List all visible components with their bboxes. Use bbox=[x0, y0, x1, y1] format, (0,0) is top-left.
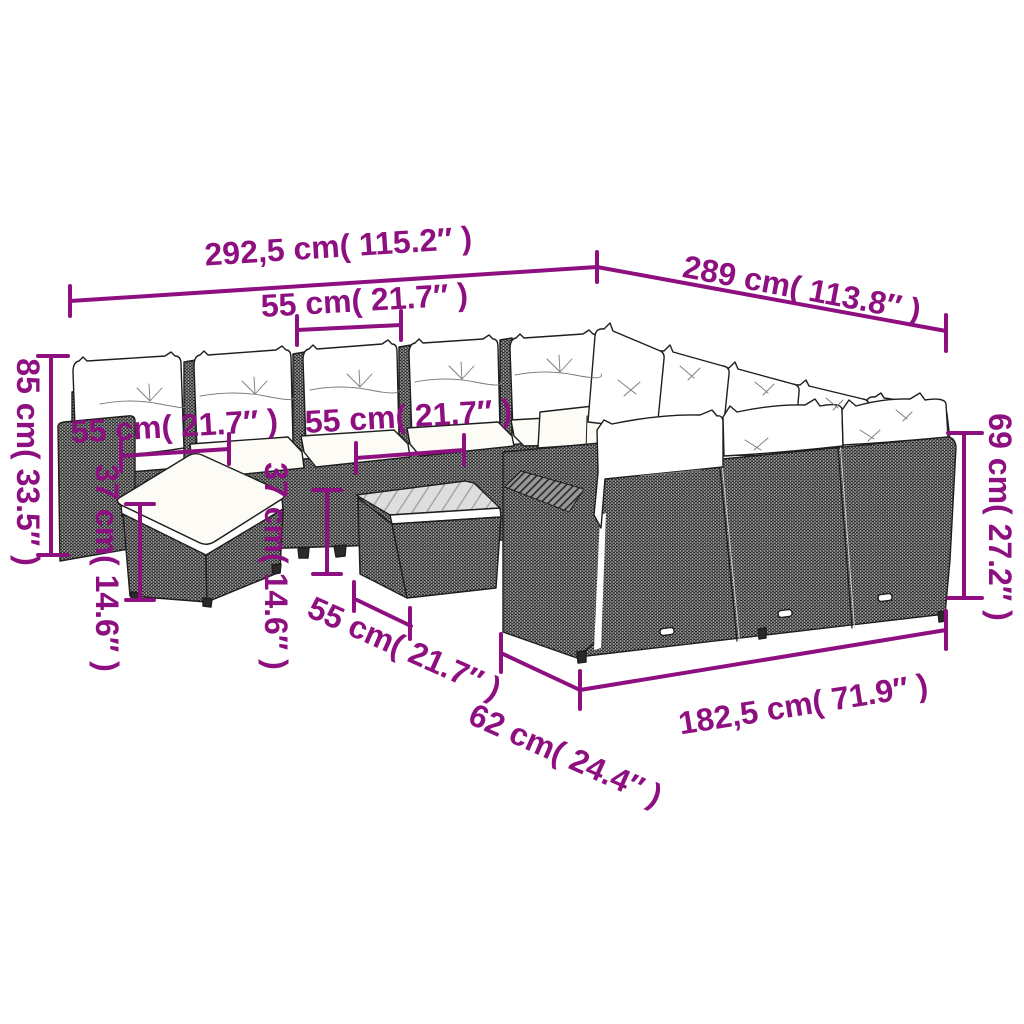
svg-text:69 cm( 27.2″ ): 69 cm( 27.2″ ) bbox=[982, 413, 1018, 620]
svg-text:55 cm( 21.7″ ): 55 cm( 21.7″ ) bbox=[260, 276, 469, 324]
svg-text:85 cm( 33.5″ ): 85 cm( 33.5″ ) bbox=[10, 358, 46, 565]
svg-text:292,5 cm( 115.2″ ): 292,5 cm( 115.2″ ) bbox=[203, 219, 473, 272]
svg-text:37 cm( 14.6″ ): 37 cm( 14.6″ ) bbox=[89, 464, 125, 671]
svg-text:182,5 cm( 71.9″ ): 182,5 cm( 71.9″ ) bbox=[676, 667, 930, 742]
svg-text:37 cm( 14.6″ ): 37 cm( 14.6″ ) bbox=[258, 462, 294, 669]
svg-text:62 cm( 24.4″ ): 62 cm( 24.4″ ) bbox=[464, 696, 668, 813]
svg-text:289 cm( 113.8″ ): 289 cm( 113.8″ ) bbox=[680, 248, 924, 328]
svg-text:55 cm( 21.7″ ): 55 cm( 21.7″ ) bbox=[303, 589, 507, 706]
